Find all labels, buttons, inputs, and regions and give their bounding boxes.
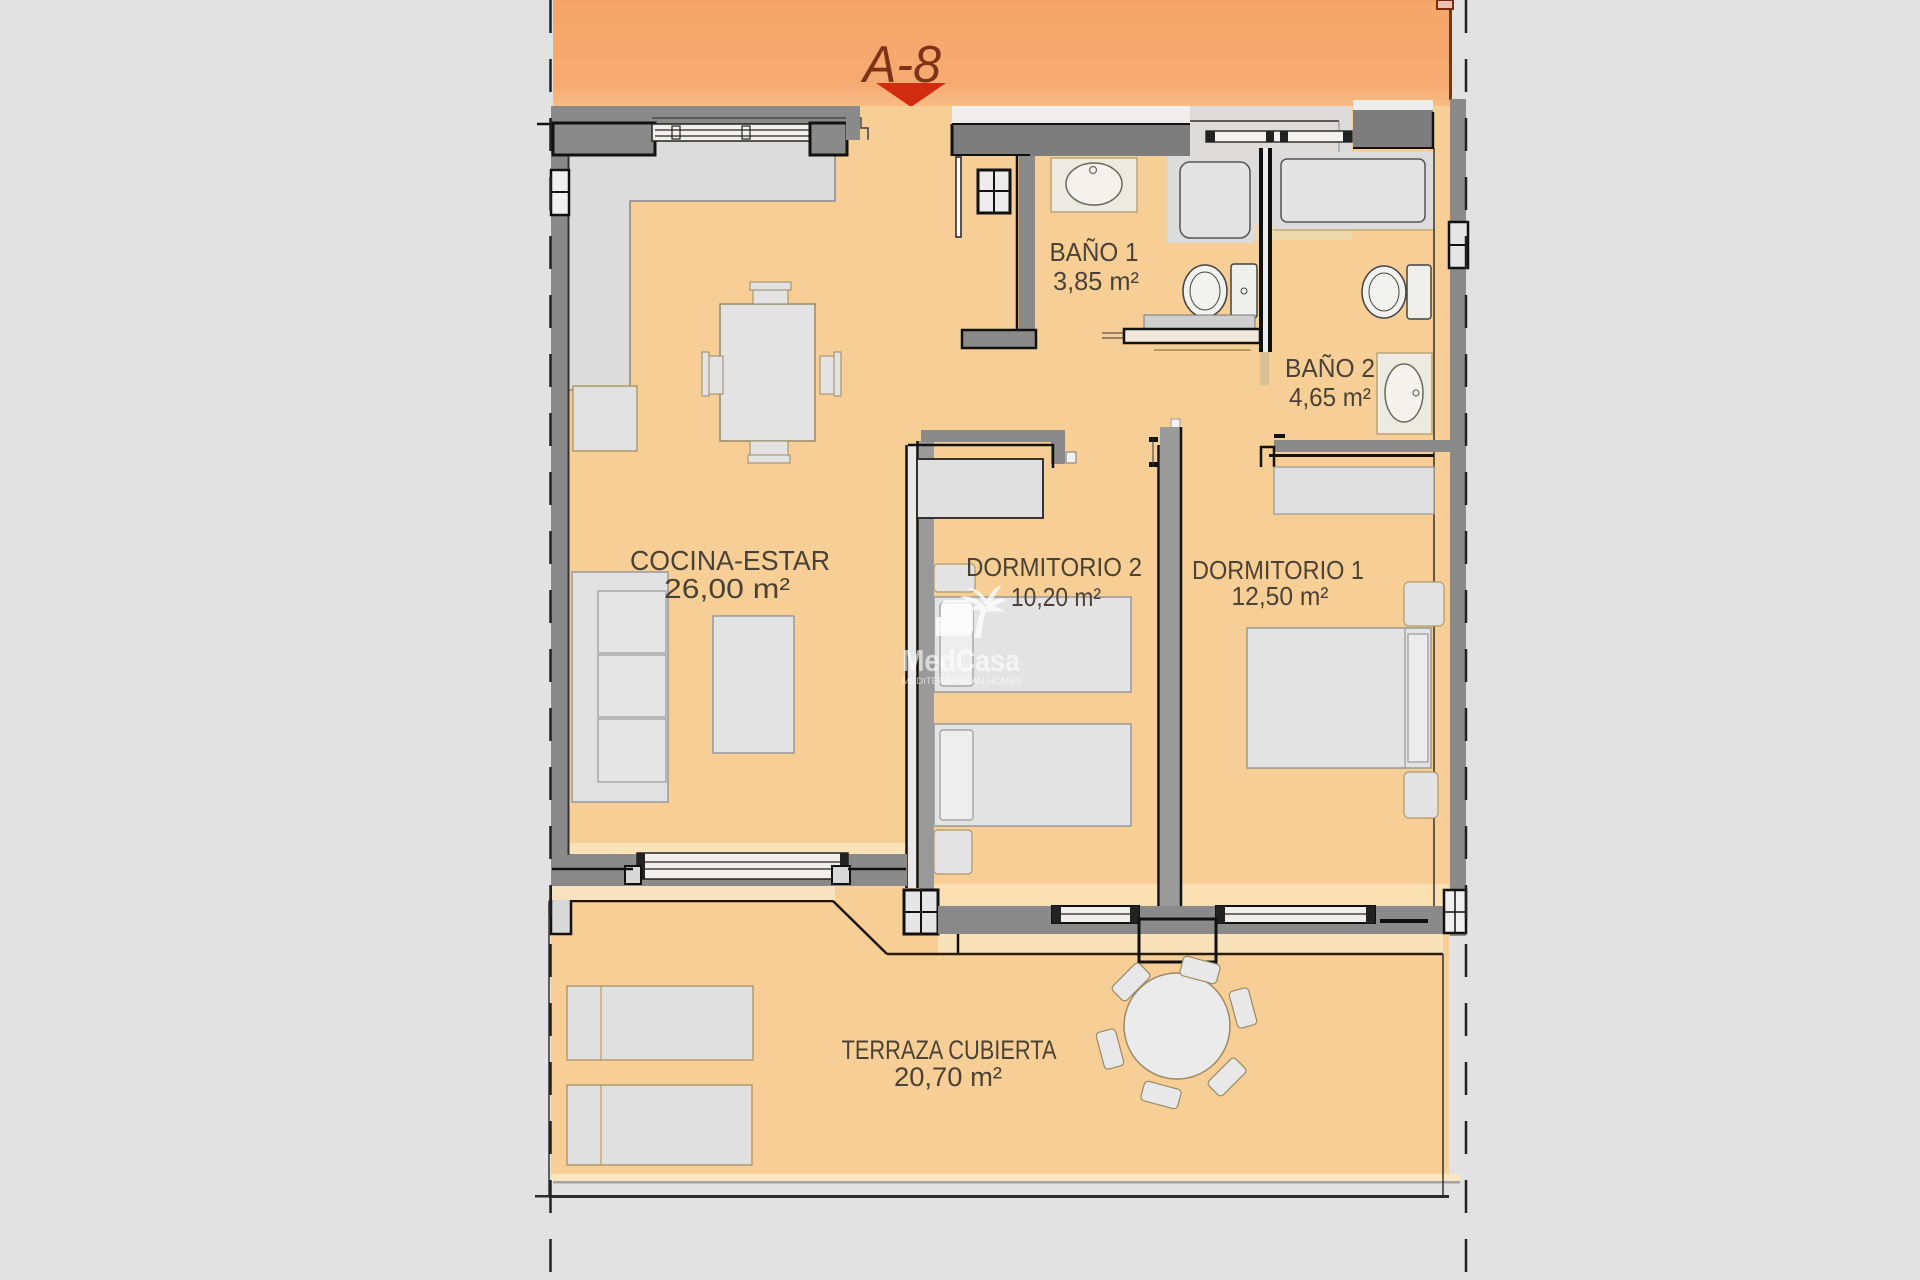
svg-text:3,85 m²: 3,85 m² — [1053, 266, 1139, 296]
svg-text:12,50 m²: 12,50 m² — [1232, 581, 1329, 611]
svg-text:COCINA-ESTAR: COCINA-ESTAR — [630, 545, 830, 576]
svg-text:TERRAZA CUBIERTA: TERRAZA CUBIERTA — [842, 1035, 1057, 1065]
svg-text:BAÑO 1: BAÑO 1 — [1050, 237, 1139, 267]
svg-text:BAÑO 2: BAÑO 2 — [1285, 353, 1375, 383]
svg-text:DORMITORIO 2: DORMITORIO 2 — [966, 552, 1142, 582]
svg-text:10,20 m²: 10,20 m² — [1011, 582, 1101, 612]
svg-text:4,65 m²: 4,65 m² — [1289, 382, 1371, 412]
svg-text:20,70 m²: 20,70 m² — [894, 1062, 1002, 1092]
svg-text:26,00 m²: 26,00 m² — [664, 573, 790, 604]
svg-text:MEDITERRANEAN HOMES: MEDITERRANEAN HOMES — [902, 676, 1022, 686]
svg-text:MedCasa: MedCasa — [902, 643, 1021, 678]
